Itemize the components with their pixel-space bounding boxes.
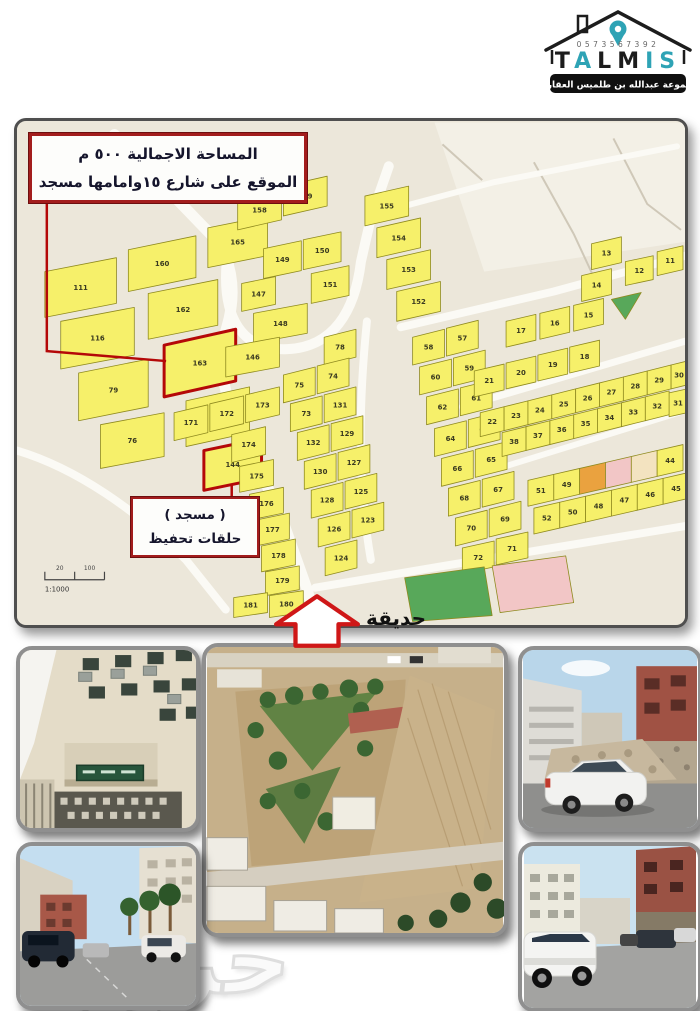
scale-tick1: 20 [56, 565, 64, 572]
plot-number: 147 [251, 290, 266, 298]
plot-number: 171 [184, 419, 199, 427]
plot-number: 26 [583, 394, 593, 402]
plot-number: 148 [273, 320, 288, 328]
plot-number: 62 [438, 403, 448, 411]
broker-logo: 0573567392 TALMIS مجموعة عبدالله بن طلمي… [542, 4, 694, 98]
plot-number: 154 [391, 234, 406, 242]
plot-number: 64 [446, 435, 456, 443]
plot-number: 124 [334, 554, 349, 562]
plot-c [631, 451, 657, 483]
plot-number: 28 [630, 382, 640, 390]
plot-number: 151 [323, 281, 338, 289]
plot-number: 17 [516, 327, 526, 335]
plot-number: 172 [220, 410, 235, 418]
plot-number: 68 [459, 495, 469, 503]
plot-number: 65 [486, 456, 496, 464]
plot-number: 48 [594, 503, 604, 511]
plot-number: 116 [90, 335, 105, 343]
plot-number: 73 [301, 410, 311, 418]
plot-number: 24 [535, 406, 545, 414]
plot-number: 49 [562, 481, 572, 489]
plot-number: 27 [607, 388, 617, 396]
plot-number: 12 [634, 267, 644, 275]
scale-tick2: 100 [84, 565, 96, 572]
plot-number: 45 [671, 485, 681, 493]
plot-number: 75 [294, 381, 304, 389]
plot-number: 52 [542, 515, 552, 523]
plot-o [580, 462, 606, 494]
listing-page: 0573567392 TALMIS مجموعة عبدالله بن طلمي… [0, 0, 700, 1011]
plot-number: 38 [509, 438, 519, 446]
plot-number: 58 [424, 344, 434, 352]
plot-number: 30 [674, 371, 684, 379]
plot-number: 173 [255, 401, 270, 409]
plot-number: 131 [333, 401, 348, 409]
plot-number: 21 [484, 377, 494, 385]
plot-number: 152 [411, 298, 426, 306]
plot-number: 47 [620, 497, 630, 505]
plot-number: 15 [584, 311, 594, 319]
plot-number: 177 [265, 526, 280, 534]
plot-number: 174 [241, 441, 256, 449]
brand-name: TALMIS [555, 49, 681, 74]
plot-number: 150 [315, 247, 330, 255]
plot-number: 22 [487, 418, 497, 426]
plot-number: 57 [458, 335, 468, 343]
plot-number: 146 [245, 354, 260, 362]
plot-number: 126 [327, 526, 342, 534]
plot-number: 76 [127, 437, 137, 445]
plot-number: 29 [654, 376, 664, 384]
plot-p [605, 457, 631, 489]
plot-number: 153 [401, 266, 416, 274]
plot-number: 72 [473, 554, 483, 562]
plot-number: 128 [320, 497, 335, 505]
plot-number: 123 [361, 517, 376, 525]
plot-number: 165 [230, 238, 245, 246]
plot-number: 11 [665, 257, 675, 265]
plot-number: 178 [271, 552, 286, 560]
plot-number: 14 [592, 282, 602, 290]
plot-number: 70 [466, 525, 476, 533]
brand-subtitle: مجموعة عبدالله بن طلميس العقارية [542, 81, 694, 91]
plot-number: 16 [550, 319, 560, 327]
mosque-annotation: ( مسجد ) حلقات تحفيظ [131, 497, 259, 557]
plot-number: 79 [109, 386, 119, 394]
plot-number: 132 [306, 439, 321, 447]
plot-number: 60 [431, 373, 441, 381]
annotation-line-area: المساحة الاجمالية ٥٠٠ م [32, 145, 304, 163]
scale-ratio: 1:1000 [45, 586, 69, 594]
photo-street-view-palms [16, 842, 200, 1010]
plot-number: 155 [380, 202, 395, 210]
plot-number: 59 [464, 365, 474, 373]
plot-number: 176 [259, 500, 274, 508]
plot-number: 127 [347, 459, 362, 467]
plot-number: 23 [511, 412, 521, 420]
photo-mosque-building [16, 646, 200, 832]
plot-number: 71 [507, 545, 517, 553]
plot-number: 35 [581, 420, 591, 428]
plot-number: 125 [354, 488, 369, 496]
photo-satellite-park [202, 643, 508, 937]
mosque-line1: ( مسجد ) [133, 507, 257, 523]
plot-number: 149 [275, 256, 290, 264]
plot-number: 175 [249, 472, 264, 480]
phone-number: 0573567392 [577, 40, 660, 49]
plot-number: 46 [645, 491, 655, 499]
plot-number: 74 [328, 372, 338, 380]
plot-map-panel: 1111601651161627916376164144158159149150… [14, 118, 688, 628]
plot-number: 78 [335, 344, 345, 352]
plot-number: 18 [580, 353, 590, 361]
plot-number: 129 [340, 430, 355, 438]
plot-number: 37 [533, 432, 543, 440]
plot-number: 158 [252, 206, 267, 214]
plot-number: 67 [493, 486, 503, 494]
park-arrow-icon [274, 594, 360, 648]
plot-number: 51 [536, 487, 546, 495]
plot-number: 36 [557, 426, 567, 434]
annotation-line-location: الموقع على شارع ١٥وامامها مسجد [32, 173, 304, 191]
total-area-annotation: المساحة الاجمالية ٥٠٠ م الموقع على شارع … [29, 133, 307, 203]
park-label: حديقة [366, 606, 426, 630]
plot-number: 31 [673, 399, 683, 407]
plot-number: 13 [602, 250, 612, 258]
plot-number: 162 [176, 306, 191, 314]
mosque-line2: حلقات تحفيظ [133, 531, 257, 547]
plot-number: 179 [275, 577, 290, 585]
plot-number: 32 [652, 402, 662, 410]
plot-number: 44 [665, 457, 675, 465]
plot-number: 163 [193, 360, 208, 368]
photo-plot-with-car [518, 646, 700, 832]
plot-number: 130 [313, 468, 328, 476]
plot-number: 50 [568, 509, 578, 517]
plot-number: 33 [628, 408, 638, 416]
plot-number: 25 [559, 400, 569, 408]
plot-number: 34 [605, 414, 615, 422]
plot-number: 111 [73, 284, 88, 292]
photo-street-view-suv [518, 842, 700, 1011]
plot-number: 66 [453, 465, 463, 473]
plot-number: 181 [243, 602, 258, 610]
plot-number: 19 [548, 361, 558, 369]
plot-number: 160 [155, 260, 170, 268]
plot-number: 20 [516, 369, 526, 377]
plot-p [492, 556, 574, 613]
plot-number: 69 [500, 516, 510, 524]
